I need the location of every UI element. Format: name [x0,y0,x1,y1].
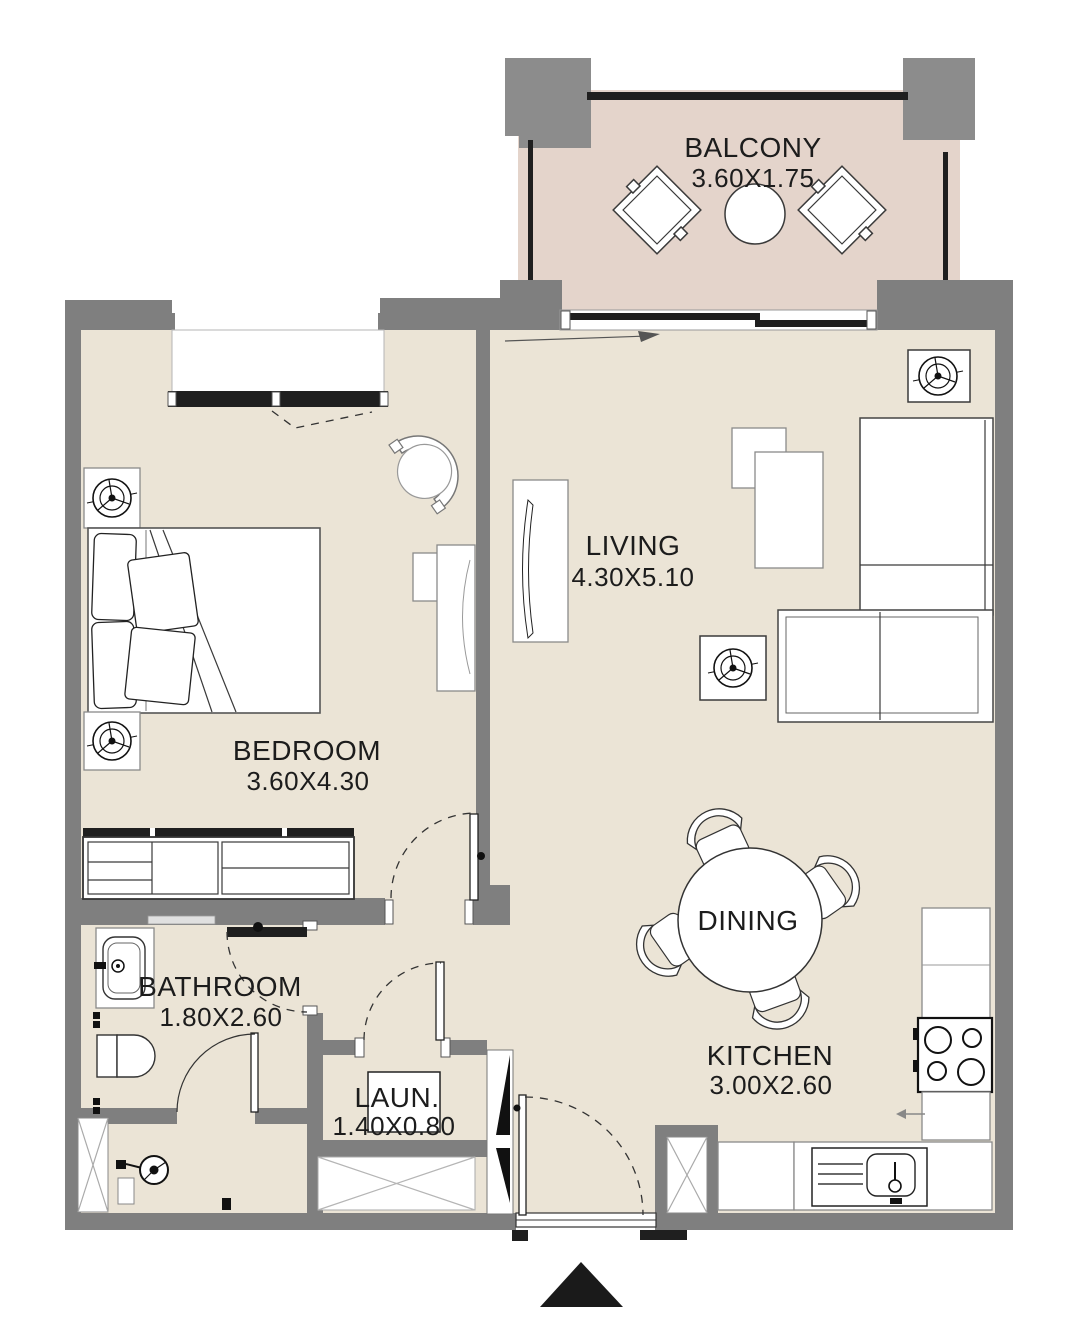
floor-plan: BALCONY 3.60X1.75 [0,0,1083,1337]
wall-laundry-bottom [307,1140,487,1157]
bath-shelf [148,916,215,924]
dining-label: DINING [698,905,799,936]
door-handle [477,852,485,860]
shaft-box-left [78,1118,108,1212]
wall-balcony-left-block [500,280,562,330]
storage-xbox [318,1157,475,1210]
throw-pillow [127,552,199,634]
balcony-label: BALCONY [684,132,821,163]
slider-panel-left [570,313,760,320]
window-recess [172,330,384,392]
bedroom-dims: 3.60X4.30 [246,766,369,796]
wall-bedroom-divider [476,330,490,885]
wardrobe-rail [83,828,354,837]
balcony-railing-right [943,152,948,285]
toilet-tank [97,1035,117,1077]
wall-top-left-pillar [65,300,172,315]
entry-marker-icon [540,1262,623,1307]
stove-icon [913,1018,992,1092]
bathroom-dims: 1.80X2.60 [159,1002,282,1032]
kitchen-sink-icon [812,1148,927,1206]
throw-pillow [124,627,195,705]
base-cabinet [718,1142,794,1210]
wall-shower-right [255,1108,307,1124]
wall-hall-bottom-left [307,1040,359,1055]
wall-bedroom-bottom [65,898,385,925]
living-dims: 4.30X5.10 [571,562,694,592]
kitchen-label: KITCHEN [707,1040,833,1071]
wardrobe [83,828,354,899]
laundry-label: LAUN. [355,1082,440,1113]
toilet-icon [117,1035,155,1077]
entry-door-leaf [519,1095,526,1215]
tv-unit [513,480,568,642]
balcony-railing-left [528,140,533,287]
desk [437,545,475,691]
wall-right [995,330,1013,1230]
balcony-pillar-right [903,58,975,140]
wall-top-mid-pillar [380,298,502,315]
balcony-table [725,184,785,244]
balcony-dims: 3.60X1.75 [691,163,814,193]
wall-balcony-right-block [877,280,1013,330]
door-leaf [227,927,307,937]
balcony-railing-top [587,92,908,100]
laundry-dims: 1.40X0.80 [332,1111,455,1141]
wall-top-bedroom-right [378,313,506,330]
floor-plan-page: BALCONY 3.60X1.75 [0,0,1083,1337]
slider-panel-right [755,320,870,327]
tall-cabinet [922,908,990,1018]
door-leaf [470,814,478,900]
bathroom-label: BATHROOM [138,971,302,1002]
kitchen-dims: 3.00X2.60 [709,1070,832,1100]
door-leaf [251,1033,258,1112]
wall-top-bedroom-left [65,313,175,330]
wall-left [65,315,81,1230]
wall-bottom-left [65,1213,516,1230]
towel-hook-icon [93,1098,100,1105]
floor-drain-icon [222,1198,231,1210]
wall-bottom-right [655,1213,1013,1230]
tap-icon [94,962,106,969]
balcony-pillar-left-step [519,58,591,148]
kitchen-shaft-xbox [667,1137,707,1213]
desk-side [413,553,439,601]
living-label: LIVING [586,530,681,561]
door-leaf [436,962,444,1040]
base-cabinet [922,1092,990,1140]
shower-fixture [118,1178,134,1204]
duct-shaft [487,1050,513,1214]
unit-floor [81,330,995,1213]
towel-hook-icon [93,1012,100,1019]
lounge-chair [755,452,823,568]
bedroom-label: BEDROOM [233,735,381,766]
